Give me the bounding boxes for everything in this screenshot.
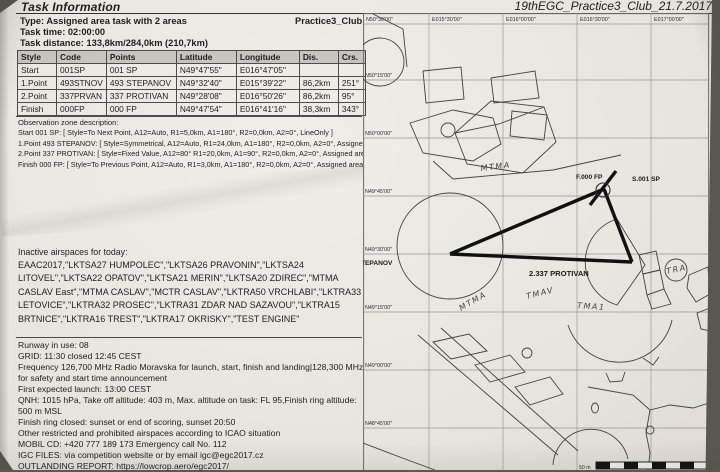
grid-label: N49°30'00" <box>365 247 392 253</box>
cell: E015°39'22" <box>236 77 299 90</box>
col-latitude: Latitude <box>176 51 236 64</box>
cell: 000 FP <box>106 103 176 116</box>
cell: 86,2km <box>299 77 338 90</box>
start-point-label: S.001 SP <box>632 176 660 183</box>
observation-line: 1.Point 493 STEPANOV: [ Style=Symmetrica… <box>18 139 363 150</box>
observation-line: Start 001 SP: [ Style=To Next Point, A12… <box>18 128 363 139</box>
briefing-line: Runway in use: 08 <box>18 340 365 351</box>
cell: 343° <box>338 103 365 116</box>
col-style: Style <box>18 51 57 64</box>
cell: N49°47'55" <box>176 64 236 77</box>
grid-label: E016°30'00" <box>580 17 610 23</box>
col-longitude: Longitude <box>236 51 299 64</box>
briefing-line: Frequency 126,700 MHz Radio Moravska for… <box>18 362 365 384</box>
scale-label: 50 m <box>579 465 591 470</box>
protivan-label: 2.337 PROTIVAN <box>529 269 589 278</box>
finish-point-label: F.000 FP <box>576 174 603 181</box>
cell <box>299 64 338 77</box>
col-course: Crs. <box>338 51 365 64</box>
cell: 493STNOV <box>57 77 107 90</box>
task-time: Task time: 02:00:00 <box>20 27 105 37</box>
briefing-line: QNH: 1015 hPa, Take off altitude: 403 m,… <box>18 395 365 417</box>
cell: 95° <box>338 90 365 103</box>
cell: 2.Point <box>18 90 57 103</box>
cell: N49°28'08" <box>176 90 236 103</box>
handwritten-airspace-note: MTMA <box>480 160 511 173</box>
col-points: Points <box>106 51 176 64</box>
airspaces-heading: Inactive airspaces for today: <box>18 247 128 257</box>
cell: 493 STEPANOV <box>106 77 176 90</box>
grid-label: N49°00'00" <box>365 363 392 369</box>
observation-line: 2.Point 337 PROTIVAN: [ Style=Fixed Valu… <box>18 149 363 160</box>
airspaces-list: EAAC2017,"LKTSA27 HUMPOLEC","LKTSA26 PRA… <box>18 259 364 326</box>
col-code: Code <box>57 51 107 64</box>
task-map: N50°30'00" E015°30'00" E016°00'00" E016°… <box>363 13 711 470</box>
cell: 38,3km <box>299 103 338 116</box>
paper-crease <box>0 165 366 236</box>
grid-label: E016°00'00" <box>506 17 536 23</box>
photographed-task-sheet: Task Information 19thEGC_Practice3_Club_… <box>0 0 720 470</box>
briefing-block: Runway in use: 08 GRID: 11:30 closed 12:… <box>18 340 365 472</box>
map-scale-bar: 50 m <box>579 462 709 470</box>
table-row: 1.Point493STNOV493 STEPANOVN49°32'40"E01… <box>18 77 366 90</box>
photo-shadow-left <box>0 0 9 470</box>
table-header-row: Style Code Points Latitude Longitude Dis… <box>18 51 366 64</box>
task-club: Practice3_Club <box>295 16 362 26</box>
cell: 86,2km <box>299 90 338 103</box>
grid-label: N50°15'00" <box>365 73 392 79</box>
stepanov-label-partial: TEPANOV <box>363 260 393 267</box>
cell: 337 PROTIVAN <box>106 90 176 103</box>
section-divider <box>16 116 362 117</box>
table-row: Finish000FP000 FPN49°47'54"E016°41'16"38… <box>18 103 366 116</box>
task-distance: Task distance: 133,8km/284,0km (210,7km) <box>20 38 208 48</box>
photo-background-corner <box>0 0 18 13</box>
observation-heading: Observation zone description: <box>18 118 118 127</box>
briefing-line: IGC FILES: via competition website or by… <box>18 450 365 461</box>
table-row: 2.Point337PRVAN337 PROTIVANN49°28'08"E01… <box>18 90 366 103</box>
cell: 337PRVAN <box>57 90 107 103</box>
airspace-outlines <box>363 14 710 470</box>
table-row: Start001SP001 SPN49°47'55"E016°47'05" <box>18 64 366 77</box>
observation-zone-list: Start 001 SP: [ Style=To Next Point, A12… <box>18 128 363 170</box>
briefing-line: Finish ring closed: sunset or end of sco… <box>18 417 365 428</box>
handwritten-airspace-note: MTMA <box>458 290 489 313</box>
cell: 251° <box>338 77 365 90</box>
briefing-line: First expected launch: 13:00 CEST <box>18 384 365 395</box>
section-divider <box>16 337 362 338</box>
document-reference: 19thEGC_Practice3_Club_21.7.2017 <box>470 0 712 13</box>
cell: 001SP <box>57 64 107 77</box>
briefing-line: MOBIL CD: +420 777 189 173 Emergency cal… <box>18 439 365 450</box>
handwritten-airspace-note: TMA1 <box>577 301 606 312</box>
cell: Start <box>18 64 57 77</box>
cell: 000FP <box>57 103 107 116</box>
cell <box>338 64 365 77</box>
handwritten-airspace-note: TMAV <box>525 285 555 301</box>
task-triangle <box>450 171 632 262</box>
briefing-line: OUTLANDING REPORT: https://lowcrop.aero/… <box>18 461 365 472</box>
briefing-line: GRID: 11:30 closed 12:45 CEST <box>18 351 365 362</box>
cell: E016°47'05" <box>236 64 299 77</box>
cell: N49°32'40" <box>176 77 236 90</box>
grid-label: N50°00'00" <box>365 131 392 137</box>
grid-label: E015°30'00" <box>432 17 462 23</box>
grid-label: N49°15'00" <box>365 305 392 311</box>
page-title: Task Information <box>21 0 120 14</box>
cell: 001 SP <box>106 64 176 77</box>
handwritten-airspace-note: TRA <box>666 263 688 276</box>
cell: N49°47'54" <box>176 103 236 116</box>
cell: 1.Point <box>18 77 57 90</box>
turnpoint-table: Style Code Points Latitude Longitude Dis… <box>17 50 366 116</box>
grid-label: E017°00'00" <box>654 17 684 23</box>
col-distance: Dis. <box>299 51 338 64</box>
grid-label: N49°45'00" <box>365 189 392 195</box>
graticule <box>363 13 709 470</box>
task-type: Type: Assigned area task with 2 areas <box>20 16 187 26</box>
grid-label: N48°45'00" <box>365 421 392 427</box>
cell: E016°50'26" <box>236 90 299 103</box>
cell: E016°41'16" <box>236 103 299 116</box>
briefing-line: Other restricted and prohibited airspace… <box>18 428 365 439</box>
cell: Finish <box>18 103 57 116</box>
